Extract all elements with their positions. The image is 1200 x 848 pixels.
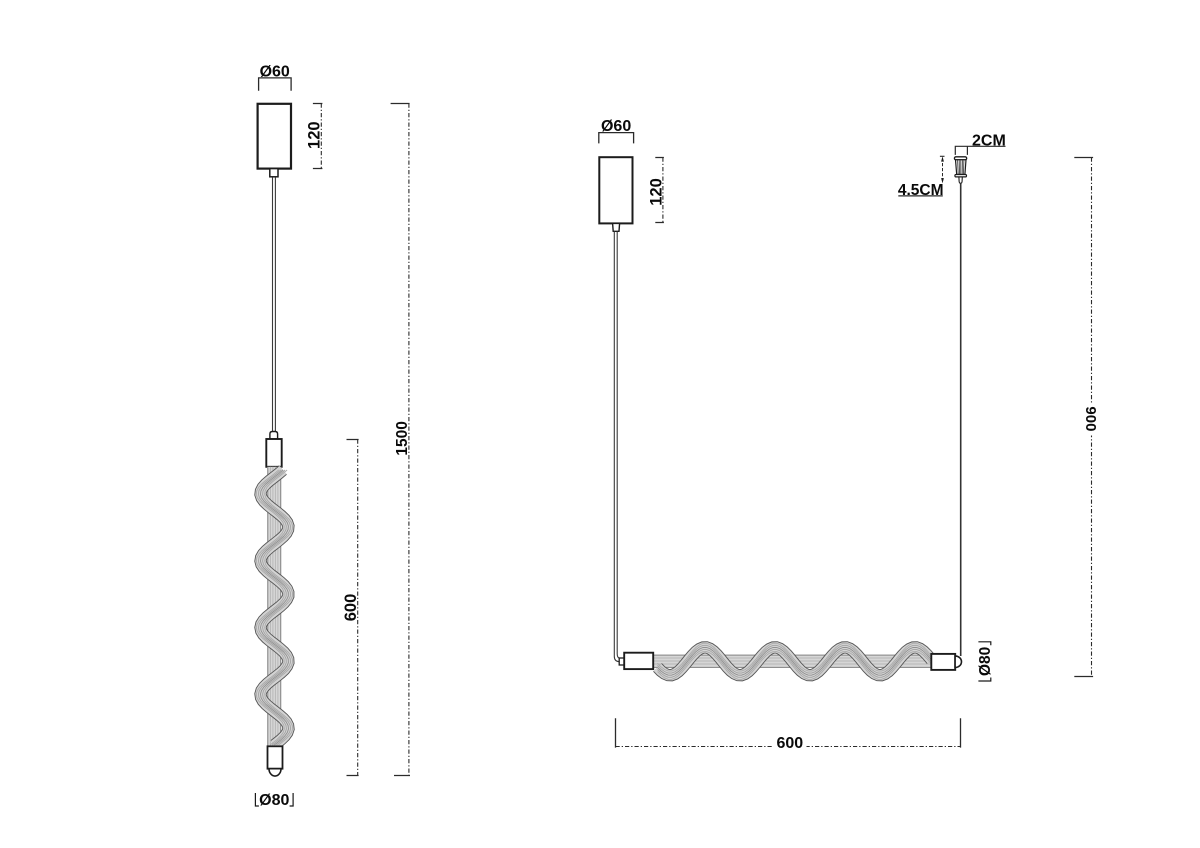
svg-text:1500: 1500 <box>394 421 411 455</box>
svg-text:900: 900 <box>1082 406 1099 431</box>
svg-text:600: 600 <box>776 735 803 752</box>
svg-text:Ø80: Ø80 <box>977 647 994 676</box>
svg-text:600: 600 <box>342 594 360 622</box>
svg-text:4.5CM: 4.5CM <box>898 182 944 199</box>
svg-text:Ø80: Ø80 <box>259 792 289 809</box>
svg-text:120: 120 <box>306 121 324 149</box>
svg-text:120: 120 <box>647 178 665 206</box>
